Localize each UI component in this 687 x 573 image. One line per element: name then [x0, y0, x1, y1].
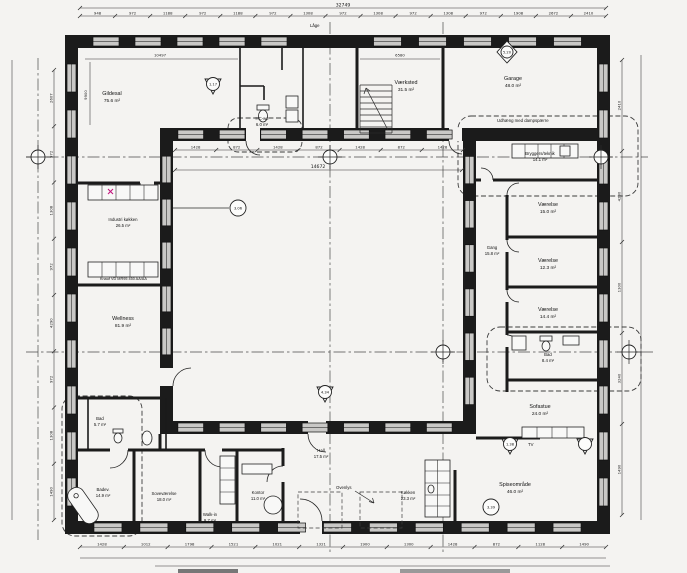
- dim-value: 1428: [273, 145, 283, 150]
- dim-value: 1308: [49, 430, 54, 440]
- windows-courtyard-bottom: [178, 423, 452, 432]
- windows-bottom: [94, 523, 581, 532]
- svg-text:3.06: 3.06: [234, 207, 243, 211]
- door-badev: [110, 450, 128, 468]
- cutoff-legend-1: [178, 569, 238, 573]
- room-label-kontor: Kontor: [252, 490, 265, 495]
- dim-value: 2410: [617, 100, 622, 110]
- marker-1-17: 1.17: [205, 78, 221, 95]
- dim-value: 1128: [535, 542, 545, 547]
- industri-counter-north: [88, 185, 158, 200]
- room-label-garage: Garage: [504, 76, 522, 82]
- room-area-sofastue: 24.0 m²: [532, 411, 549, 417]
- dim-courtyard-width: 14672: [311, 164, 326, 170]
- dim-value: 972: [339, 11, 347, 16]
- dim-value: 1308: [49, 205, 54, 215]
- dim-value: 872: [493, 542, 501, 547]
- walkin-shelves: [220, 456, 235, 504]
- room-area-garage: 48.0 m²: [505, 83, 522, 89]
- dim-value: 1428: [448, 542, 458, 547]
- room-label-sofastue: Sofastue: [529, 404, 550, 410]
- sink-bad1: [563, 336, 579, 345]
- dim-gildesal-height: 9900: [83, 90, 88, 100]
- room-area-hcwc: 6.0 m²: [256, 122, 269, 127]
- dim-value: 2607: [49, 93, 54, 103]
- dim-value: 1798: [185, 542, 195, 547]
- door-garage: [449, 141, 462, 154]
- toilet-bad2: [114, 433, 122, 443]
- room-label-badev: Badev.: [96, 487, 109, 492]
- marker-4-34: 4.34: [317, 386, 333, 403]
- room-label-hall: Hall: [317, 448, 324, 453]
- room-label-vaerelse3: Værelse: [538, 307, 558, 313]
- room-label-vaerelse2: Værelse: [538, 258, 558, 264]
- shower-bad1: [512, 336, 526, 350]
- sink-bad2: [142, 431, 152, 445]
- toilet-tank-bad2: [113, 429, 123, 433]
- dim-value: 1188: [233, 11, 243, 16]
- dim-topmid-width: 6580: [395, 53, 405, 58]
- dim-value: 1308: [373, 11, 383, 16]
- room-area-bryggers: 14.1 m²: [533, 157, 548, 162]
- wc-courtyard-door-opening: [246, 128, 260, 141]
- room-area-wellness: 81.9 m²: [115, 323, 132, 329]
- dim-top-total: 32749: [336, 3, 351, 9]
- svg-text:1.38: 1.38: [506, 443, 515, 447]
- room-area-walkin: 9.7 m²: [204, 518, 217, 523]
- floor-plan-canvas: 9489721188972118897213089721308972130897…: [0, 0, 687, 573]
- note-laage: Låge: [310, 23, 320, 28]
- room-area-kontor: 11.0 m²: [251, 496, 266, 501]
- room-label-vaerelse1: Værelse: [538, 202, 558, 208]
- dim-value: 1908: [513, 11, 523, 16]
- dim-value: 2410: [584, 11, 594, 16]
- room-area-hall: 17.5 m²: [314, 454, 329, 459]
- dim-value: 972: [129, 11, 137, 16]
- kontor-cabinet: [242, 464, 272, 474]
- dim-value: 1490: [617, 464, 622, 474]
- industri-counter-south: [88, 262, 158, 277]
- dim-value: 1308: [443, 11, 453, 16]
- room-area-vaerelse2: 12.3 m²: [540, 265, 557, 271]
- marker-1-38: 1.38: [502, 438, 518, 455]
- ovenlys-arrow: [355, 491, 374, 503]
- dim-value: 1428: [355, 145, 365, 150]
- dim-value: 1428: [97, 542, 107, 547]
- room-area-vaerksted: 31.5 m²: [398, 87, 415, 93]
- koekken-counter: [425, 460, 450, 517]
- room-area-sovevaerelse: 18.0 m²: [157, 497, 172, 502]
- round-table: [264, 496, 282, 514]
- toilet-tank-hcwc: [257, 105, 269, 110]
- room-label-hcwc: HC-wc: [256, 116, 270, 121]
- door-bryggers: [481, 168, 493, 180]
- dim-value: 972: [49, 263, 54, 271]
- dim-value: 1490: [49, 486, 54, 496]
- stairs: [360, 85, 392, 133]
- room-label-koekken: Køkken: [401, 490, 416, 495]
- dim-row-right: 24104230130032401490: [617, 58, 625, 517]
- dim-value: 872: [233, 145, 241, 150]
- door-vaerelse2: [507, 240, 519, 252]
- room-area-spiseomraade: 46.0 m²: [507, 489, 524, 495]
- note-tv: TV: [528, 442, 534, 447]
- dim-value: 972: [49, 375, 54, 383]
- cutoff-legend-2: [400, 569, 510, 573]
- room-label-walkin: Walk-in: [203, 512, 218, 517]
- overhang-zones: [62, 48, 641, 536]
- dim-value: 972: [269, 11, 277, 16]
- dim-row-left: 26079721308972429097213081490: [49, 68, 57, 522]
- dim-value: 4290: [49, 318, 54, 328]
- room-label-bryggers: Bryggers/teknik: [525, 151, 555, 156]
- dim-value: 1428: [438, 145, 448, 150]
- room-label-bad2: Bad: [96, 416, 104, 421]
- toilet-bad1: [542, 341, 550, 351]
- dim-value: 872: [398, 145, 406, 150]
- door-vaerelse1: [507, 183, 519, 195]
- svg-text:1.17: 1.17: [209, 83, 217, 87]
- room-label-vaerksted: Værksted: [394, 80, 417, 86]
- dim-value: 972: [199, 11, 207, 16]
- dim-gildesal-width: 10497: [154, 53, 167, 58]
- dim-value: 3240: [617, 373, 622, 383]
- windows-courtyard-top: [178, 130, 452, 139]
- note-udhaeng: Udhæng med dampspærre: [497, 118, 549, 123]
- washer: [286, 96, 298, 108]
- room-label-spiseomraade: Spiseområde: [499, 481, 531, 488]
- room-label-sovevaerelse: Soveværelse: [151, 491, 177, 496]
- door-entrance: [300, 499, 322, 521]
- door-wellness-courtyard: [173, 368, 191, 386]
- dim-value: 1490: [579, 542, 589, 547]
- room-area-vaerelse3: 14.4 m²: [540, 314, 557, 320]
- door-vaerelse3: [507, 290, 519, 302]
- dim-row-courtyard-top: 1428872142887214288721428: [173, 145, 465, 153]
- room-area-gang: 15.8 m²: [485, 251, 500, 256]
- room-area-industrikoekken: 26.5 m²: [116, 223, 131, 228]
- note-knauf: Knauf VD MR95 450 AA/AA: [100, 277, 147, 281]
- marker-3-06: 3.06: [173, 200, 246, 216]
- dim-value: 2672: [549, 11, 559, 16]
- dim-value: 1308: [303, 11, 313, 16]
- dim-value: 1521: [229, 542, 239, 547]
- dim-value: 972: [410, 11, 418, 16]
- room-label-industrikoekken: Industri køkken: [108, 217, 138, 222]
- dryer: [286, 110, 298, 122]
- courtyard-walls: [160, 128, 597, 434]
- tv-bench: [522, 427, 584, 438]
- toilet-tank-bad1: [540, 336, 552, 341]
- note-ovenlys: Ovenlys: [336, 485, 352, 490]
- room-label-gang: Gang: [487, 245, 498, 250]
- room-area-koekken: 23.3 m²: [401, 496, 416, 501]
- svg-text:3.39: 3.39: [487, 506, 496, 510]
- floor-plan-drawing: 9489721188972118897213089721308972130897…: [0, 0, 687, 573]
- dim-row-top: 9489721188972118897213089721308972130897…: [78, 11, 608, 19]
- dim-value: 872: [315, 145, 323, 150]
- svg-text:4.34: 4.34: [321, 391, 330, 395]
- wellness-courtyard-door-opening: [160, 368, 173, 386]
- door-sovevaerelse: [205, 450, 222, 467]
- room-area-bad2: 5.7 m²: [94, 422, 107, 427]
- room-label-gildesal: Gildesal: [102, 91, 121, 97]
- dim-value: 1428: [191, 145, 201, 150]
- dim-value: 1300: [404, 542, 414, 547]
- dim-value: 1321: [316, 542, 326, 547]
- room-area-vaerelse1: 15.0 m²: [540, 209, 557, 215]
- dim-row-bottom: 1428101217981521102113211900130014288721…: [78, 542, 608, 550]
- door-wc: [246, 141, 260, 155]
- dim-value: 972: [480, 11, 488, 16]
- room-area-badev: 14.9 m²: [96, 493, 111, 498]
- dim-value: 4230: [617, 191, 622, 201]
- room-area-bad1: 8.4 m²: [542, 358, 555, 363]
- dim-value: 1300: [617, 282, 622, 292]
- dim-value: 1900: [360, 542, 370, 547]
- dim-value: 1188: [163, 11, 173, 16]
- dim-value: 948: [94, 11, 102, 16]
- room-label-bad1: Bad: [544, 352, 552, 357]
- marker-3-39: 3.39: [483, 499, 499, 515]
- dim-value: 1012: [141, 542, 151, 547]
- marker-bottom-right: [577, 438, 593, 455]
- dim-value: 1021: [272, 542, 282, 547]
- room-label-wellness: Wellness: [112, 316, 134, 322]
- room-area-gildesal: 75.6 m²: [104, 98, 121, 104]
- svg-text:5.20: 5.20: [503, 51, 512, 55]
